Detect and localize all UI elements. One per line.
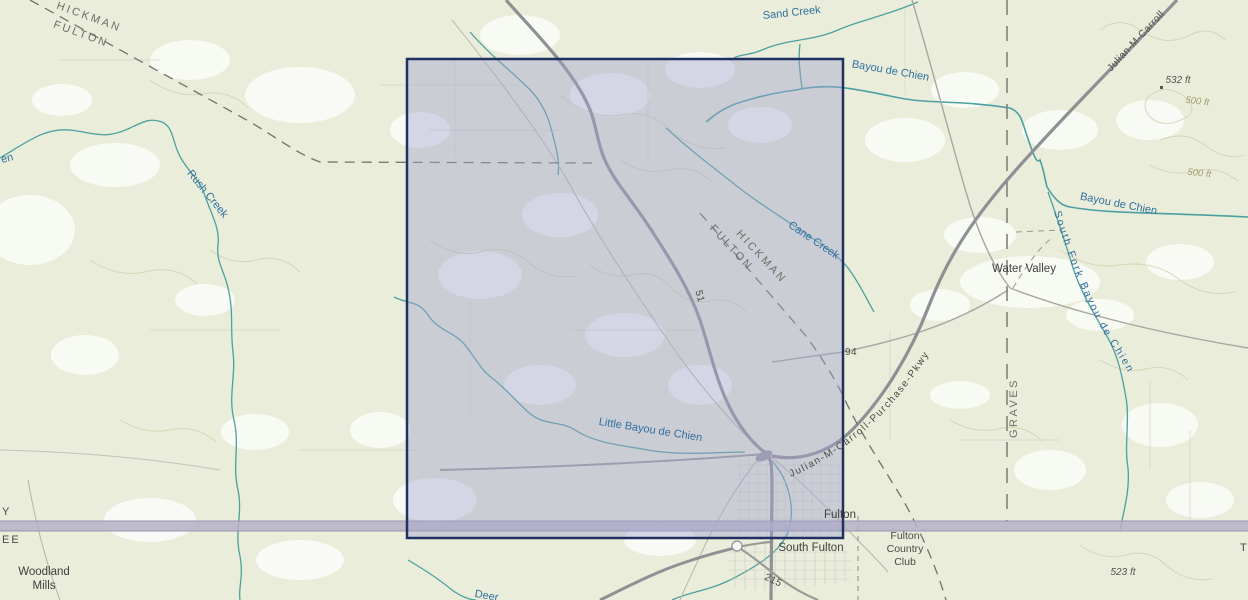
map-label-elev-523: 523 ft: [1110, 567, 1136, 578]
map-label-fulton-country-club-1: Fulton: [890, 530, 919, 542]
map-label-woodland-mills-1: Woodland: [18, 566, 70, 578]
map-label-elev-532: 532 ft: [1165, 75, 1191, 86]
interchange-circle: [732, 541, 742, 551]
map-viewport[interactable]: HICKMANFULTONHICKMANFULTONGRAVESWater Va…: [0, 0, 1248, 600]
map-label-south-fulton: South Fulton: [778, 542, 843, 554]
map-label-route-94: 94: [845, 347, 857, 358]
map-label-woodland-mills-2: Mills: [33, 580, 56, 592]
map-label-graves: GRAVES: [1008, 378, 1020, 438]
topo-map[interactable]: HICKMANFULTONHICKMANFULTONGRAVESWater Va…: [0, 0, 1248, 600]
map-label-fulton-country-club-3: Club: [894, 556, 916, 568]
map-label-state-tn-right: T: [1240, 542, 1248, 554]
selection-rectangle[interactable]: [407, 59, 843, 538]
map-label-state-tn-partial: EE: [2, 534, 21, 546]
map-label-state-ky-partial: Y: [2, 506, 11, 518]
map-label-fulton-country-club-2: Country: [887, 543, 925, 555]
spot-elevation-dot: [1160, 86, 1163, 89]
map-label-water-valley: Water Valley: [992, 263, 1056, 275]
map-label-fulton-city: Fulton: [824, 509, 856, 521]
